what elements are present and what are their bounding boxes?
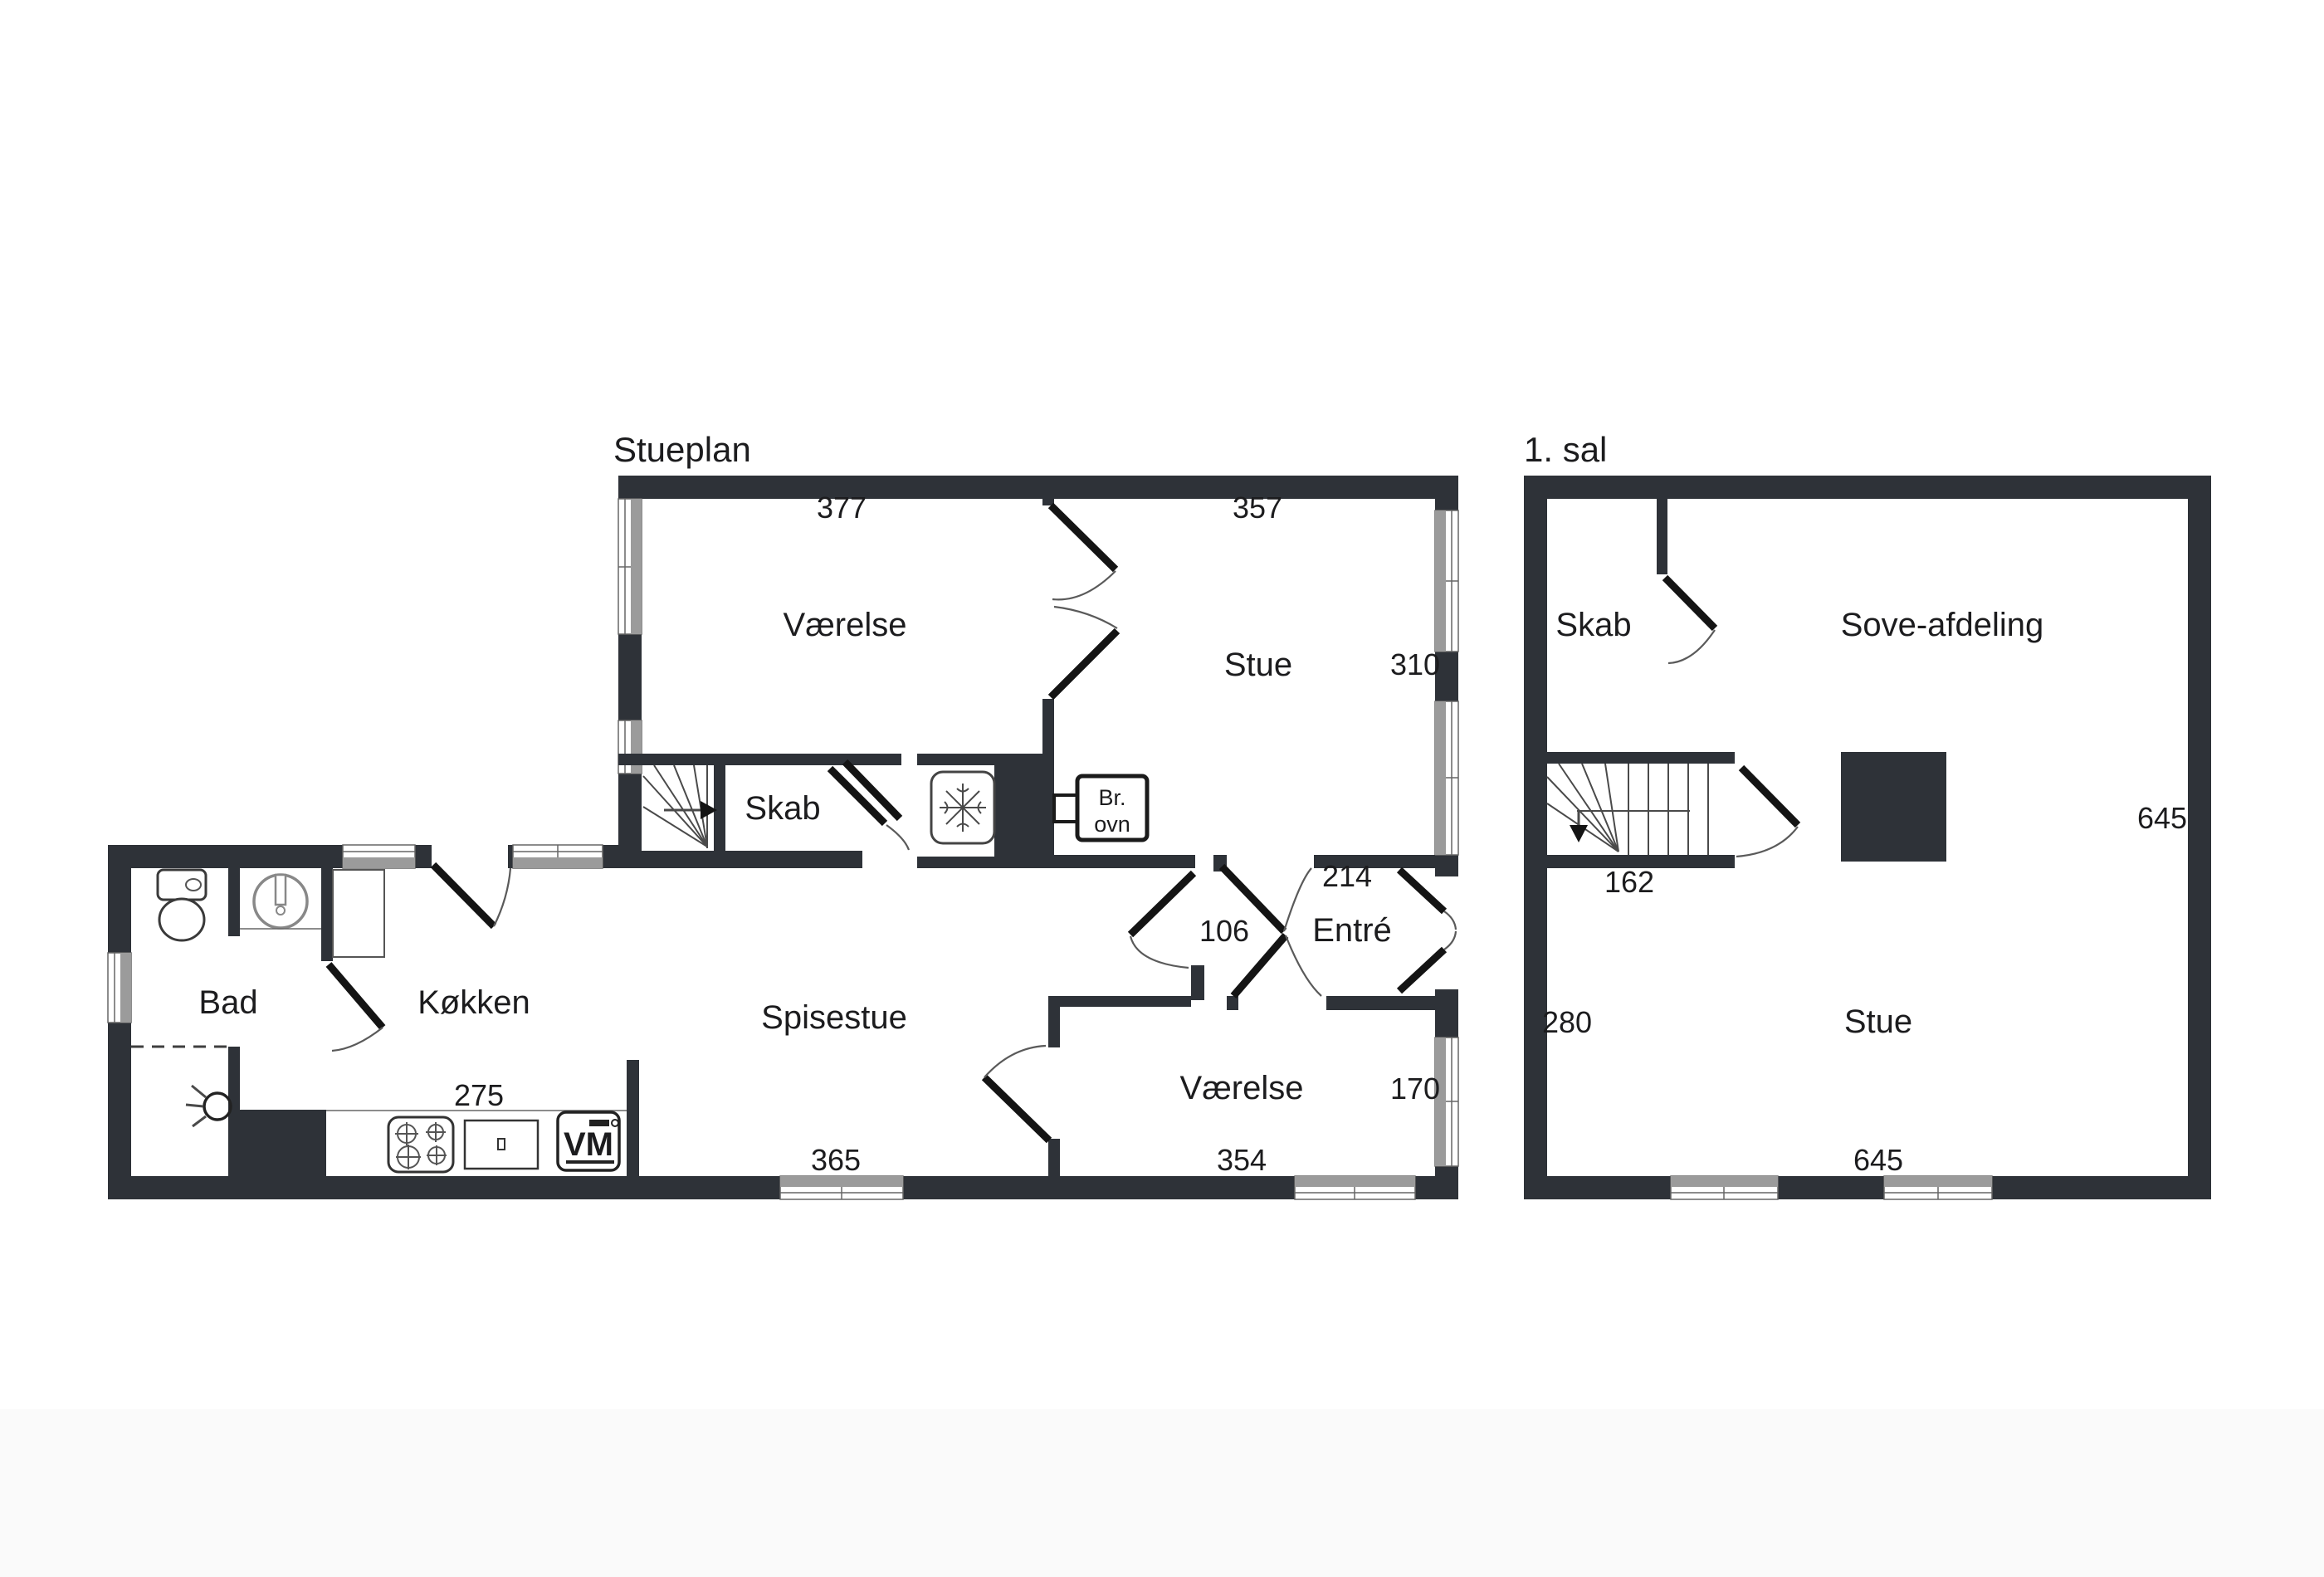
room-kitchen: Køkken bbox=[417, 984, 530, 1021]
dining-passage-door bbox=[1130, 873, 1194, 968]
room-living: Stue bbox=[1224, 647, 1292, 683]
stairs-down-arrow bbox=[1570, 825, 1588, 842]
kitchen-entry-door bbox=[433, 865, 510, 926]
dim-dining-width: 365 bbox=[811, 1143, 861, 1177]
window-bottom-dining bbox=[780, 1176, 903, 1199]
kitchen-door-opening bbox=[432, 845, 508, 868]
dim-living-depth: 310 bbox=[1390, 647, 1440, 681]
window-right-1 bbox=[1435, 510, 1458, 652]
window-left-2 bbox=[618, 720, 642, 774]
window-first-bottom-2 bbox=[1884, 1176, 1992, 1199]
window-left-1 bbox=[618, 499, 642, 634]
dim-left-depth: 280 bbox=[1542, 1005, 1592, 1039]
freezer-icon bbox=[931, 772, 994, 843]
stair-door-first bbox=[1736, 768, 1798, 857]
bath-cabinet bbox=[333, 870, 384, 957]
first-stairs bbox=[1547, 764, 1708, 855]
washbasin-icon bbox=[240, 875, 321, 929]
washing-machine-label: VM bbox=[564, 1126, 613, 1163]
dim-passage-width: 106 bbox=[1199, 914, 1249, 948]
room-bedroom-top: Værelse bbox=[784, 607, 907, 643]
ground-doors bbox=[329, 505, 1456, 1140]
room-living-first: Stue bbox=[1844, 1003, 1912, 1040]
washing-machine-icon: VM bbox=[558, 1112, 619, 1170]
window-first-bottom-1 bbox=[1671, 1176, 1778, 1199]
dim-living-width: 357 bbox=[1233, 491, 1282, 525]
bedroom-living-double-door bbox=[1051, 505, 1117, 697]
dim-bottom-width: 645 bbox=[1853, 1143, 1903, 1177]
room-bathroom: Bad bbox=[198, 984, 257, 1021]
dim-bedroom-bottom-depth: 170 bbox=[1390, 1072, 1440, 1106]
closet-door-ground bbox=[830, 762, 909, 850]
first-floor-title: 1. sal bbox=[1524, 430, 1607, 469]
dim-bedroom-bottom-width: 354 bbox=[1217, 1143, 1267, 1177]
wood-stove: Br. ovn bbox=[1054, 776, 1147, 840]
window-bottom-bedroom bbox=[1295, 1176, 1415, 1199]
dim-bedroom-top-width: 377 bbox=[817, 491, 867, 525]
room-closet-first: Skab bbox=[1555, 607, 1631, 643]
window-bath-left bbox=[108, 953, 131, 1023]
window-right-2 bbox=[1435, 701, 1458, 855]
closet-door-first bbox=[1665, 578, 1715, 663]
room-dining: Spisestue bbox=[761, 999, 907, 1036]
dim-kitchen-width: 275 bbox=[454, 1078, 504, 1112]
first-doors bbox=[1665, 578, 1798, 857]
room-sleeping-area: Sove-afdeling bbox=[1841, 607, 2044, 643]
first-floor-plan: 1. sal Skab Sove-afdeling 162 280 Stue 6… bbox=[1524, 430, 2211, 1199]
room-closet-ground: Skab bbox=[745, 790, 820, 827]
dim-right-depth: 645 bbox=[2137, 801, 2187, 835]
chimney-block bbox=[1841, 752, 1946, 862]
first-interior-walls bbox=[1547, 499, 1946, 868]
ground-stairs bbox=[643, 765, 717, 848]
toilet-icon bbox=[158, 870, 206, 940]
wood-stove-label-1: Br. bbox=[1098, 785, 1125, 810]
dim-entry-width: 214 bbox=[1322, 859, 1372, 893]
wood-stove-label-2: ovn bbox=[1094, 812, 1130, 837]
ground-floor-title: Stueplan bbox=[613, 430, 751, 469]
floor-plan-page: VM Br. ovn Stueplan 37 bbox=[0, 0, 2324, 1577]
window-bath-top bbox=[343, 845, 415, 868]
ground-floor-plan: VM Br. ovn Stueplan 37 bbox=[108, 430, 1458, 1199]
bedroom-bottom-door bbox=[984, 1046, 1049, 1140]
stove-icon bbox=[388, 1117, 453, 1172]
window-kitchen-top bbox=[513, 845, 603, 868]
kitchen-sink-icon bbox=[465, 1120, 538, 1169]
ground-labels: Stueplan 377 357 Værelse Stue 310 Skab 2… bbox=[198, 430, 1440, 1177]
bathroom-door bbox=[329, 964, 383, 1051]
room-entry: Entré bbox=[1312, 912, 1392, 949]
room-bedroom-bottom: Værelse bbox=[1180, 1070, 1304, 1106]
dim-stair-width: 162 bbox=[1604, 865, 1654, 899]
shower-icon bbox=[186, 1086, 231, 1126]
floor-plan-canvas: VM Br. ovn Stueplan 37 bbox=[0, 0, 2324, 1577]
